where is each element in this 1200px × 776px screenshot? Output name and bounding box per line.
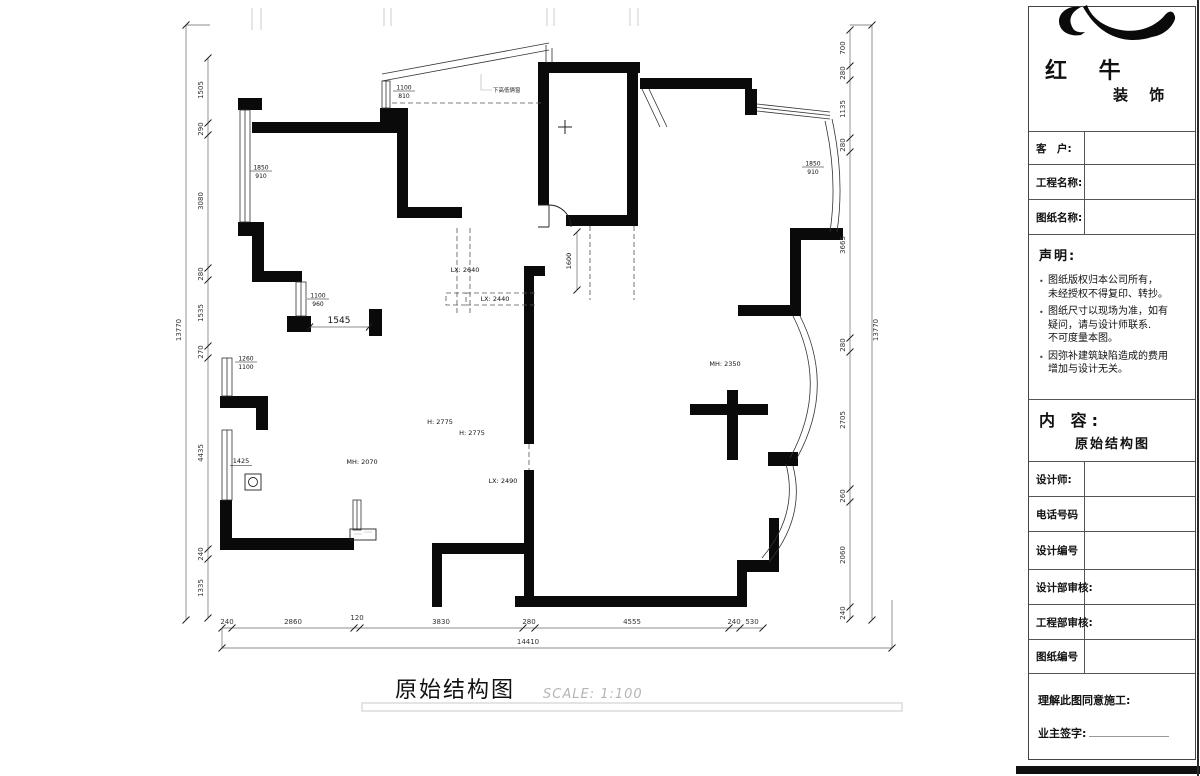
svg-text:120: 120 [350, 614, 363, 622]
svg-text:260: 260 [839, 489, 847, 502]
door-height-label-1: MH: 2070 [346, 458, 377, 466]
note-small: 下高低俩窗 [493, 86, 521, 94]
window-dim-1425: 1425 [233, 457, 250, 465]
svg-text:1850: 1850 [805, 161, 820, 168]
drawing-title: 原始结构图 SCALE: 1:100 [362, 678, 902, 711]
svg-text:280: 280 [197, 267, 205, 280]
window-dim-1100-810: 1100 810 [393, 85, 415, 101]
statement-item: 因弥补建筑缺陷造成的费用 增加与设计无关。 [1039, 350, 1189, 377]
sheet-no-value [1085, 640, 1195, 673]
designer-value [1085, 462, 1195, 496]
field-row-sheet: 图纸名称: [1029, 199, 1195, 234]
drawing-title-text: 原始结构图 [395, 678, 515, 703]
field-row-customer: 客 户: [1029, 131, 1195, 164]
eng-review-label: 工程部审核: [1029, 605, 1085, 639]
svg-text:530: 530 [745, 618, 758, 626]
dim-chain-right: 700 280 1135 280 3665 280 2705 260 2060 … [839, 22, 880, 624]
svg-text:280: 280 [839, 66, 847, 79]
agree-text: 理解此图同意施工: [1038, 692, 1187, 708]
statement-item: 图纸版权归本公司所有， 未经授权不得复印、转抄。 [1039, 274, 1189, 301]
project-name-label: 工程名称: [1029, 165, 1085, 199]
svg-text:1850: 1850 [253, 165, 268, 172]
field-row-design-no: 设计编号 [1029, 531, 1195, 569]
designer-label: 设计师: [1029, 462, 1085, 496]
svg-text:270: 270 [197, 345, 205, 358]
field-row-project: 工程名称: [1029, 164, 1195, 199]
company-logo: 红 牛 装 饰 [1029, 7, 1195, 131]
beam-label-2: LX: 2440 [481, 295, 510, 303]
dim-1545: 1545 [328, 316, 351, 326]
statement-item: 图纸尺寸以现场为准，如有 疑问，请与设计师联系. 不可度量本图。 [1039, 305, 1189, 346]
brand-name: 红 牛 [1045, 53, 1133, 85]
drawing-scale-text: SCALE: 1:100 [543, 687, 643, 702]
svg-text:240: 240 [727, 618, 740, 626]
bull-logo-icon [1029, 5, 1197, 51]
svg-text:1505: 1505 [197, 81, 205, 99]
svg-text:1100: 1100 [310, 293, 325, 300]
statement-heading: 声明: [1039, 245, 1189, 264]
content-block: 内 容: 原始结构图 [1029, 399, 1195, 461]
window-dim-1260-1100: 1260 1100 [235, 356, 257, 372]
sheet-name-value [1085, 200, 1195, 234]
svg-text:290: 290 [197, 122, 205, 135]
field-row-design-review: 设计部审核: [1029, 569, 1195, 604]
svg-text:2705: 2705 [839, 411, 847, 429]
design-no-label: 设计编号 [1029, 532, 1085, 569]
dim-bottom-total: 14410 [517, 638, 539, 646]
dim-right-total: 13770 [872, 319, 880, 341]
leader-line [481, 74, 492, 90]
door-height-label-2: MH: 2350 [709, 360, 740, 368]
brand-subname: 装 饰 [1113, 84, 1172, 105]
sheet-name-label: 图纸名称: [1029, 200, 1085, 234]
statement-block: 声明: 图纸版权归本公司所有， 未经授权不得复印、转抄。 图纸尺寸以现场为准，如… [1029, 234, 1195, 399]
height-label-1: H: 2775 [427, 418, 453, 426]
field-row-eng-review: 工程部审核: [1029, 604, 1195, 639]
height-label-2: H: 2775 [459, 429, 485, 437]
bottom-bar [1016, 766, 1200, 774]
page-edge-line [1197, 0, 1199, 776]
walls [220, 62, 843, 607]
project-name-value [1085, 165, 1195, 199]
title-block: 红 牛 装 饰 客 户: 工程名称: 图纸名称: 声明: 图纸版权归本公司所有，… [1028, 6, 1196, 760]
svg-text:3665: 3665 [839, 236, 847, 254]
svg-text:1335: 1335 [197, 579, 205, 597]
center-mark [558, 120, 572, 134]
svg-text:1100: 1100 [396, 85, 411, 92]
beam-label-3: LX: 2490 [489, 477, 518, 485]
customer-value [1085, 132, 1195, 164]
design-review-value [1085, 570, 1195, 604]
dim-1600: 1600 [565, 253, 573, 270]
field-row-sheet-no: 图纸编号 [1029, 639, 1195, 673]
phone-label: 电话号码 [1029, 497, 1085, 531]
svg-text:240: 240 [839, 606, 847, 619]
signature-line [1089, 726, 1169, 737]
svg-text:280: 280 [839, 338, 847, 351]
plan-details [245, 74, 634, 540]
dim-chain-left: 1505 290 3080 280 1535 270 4435 240 1335… [175, 22, 212, 624]
content-heading: 内 容: [1039, 407, 1103, 431]
svg-text:3080: 3080 [197, 192, 205, 210]
floor-plan-drawing: 1850 910 1100 810 1100 960 1850 910 1260… [0, 0, 1010, 776]
window-dim-1850-910-left: 1850 910 [250, 165, 272, 181]
phone-value [1085, 497, 1195, 531]
signature-block: 理解此图同意施工: 业主签字: [1029, 673, 1195, 761]
svg-text:1535: 1535 [197, 304, 205, 322]
svg-text:3830: 3830 [432, 618, 450, 626]
reference-marks [252, 8, 638, 30]
svg-text:1135: 1135 [839, 100, 847, 118]
column-symbol [245, 474, 261, 490]
svg-text:1260: 1260 [238, 356, 253, 363]
title-underline-bar [362, 703, 902, 711]
svg-text:910: 910 [807, 169, 819, 176]
svg-text:1100: 1100 [238, 364, 253, 371]
content-value: 原始结构图 [1075, 433, 1150, 452]
svg-text:280: 280 [839, 138, 847, 151]
svg-text:4435: 4435 [197, 444, 205, 462]
svg-text:240: 240 [220, 618, 233, 626]
owner-sign-label: 业主签字: [1038, 727, 1086, 740]
svg-text:4555: 4555 [623, 618, 641, 626]
dim-left-total: 13770 [175, 319, 183, 341]
svg-text:700: 700 [839, 41, 847, 54]
sheet-no-label: 图纸编号 [1029, 640, 1085, 673]
dim-chain-bottom: 240 2860 120 3830 280 4555 240 530 14410 [219, 600, 896, 652]
svg-text:280: 280 [522, 618, 535, 626]
svg-text:2860: 2860 [284, 618, 302, 626]
svg-text:240: 240 [197, 547, 205, 560]
svg-text:810: 810 [398, 93, 410, 100]
field-row-phone: 电话号码 [1029, 496, 1195, 531]
field-row-designer: 设计师: [1029, 461, 1195, 496]
svg-text:2060: 2060 [839, 546, 847, 564]
window-dim-1850-910-right: 1850 910 [802, 161, 824, 177]
design-no-value [1085, 532, 1195, 569]
design-review-label: 设计部审核: [1029, 570, 1085, 604]
customer-label: 客 户: [1029, 132, 1085, 164]
window-dim-1100-960: 1100 960 [307, 293, 329, 309]
eng-review-value [1085, 605, 1195, 639]
beam-label-1: LX: 2640 [451, 266, 480, 274]
svg-text:910: 910 [255, 173, 267, 180]
svg-text:960: 960 [312, 301, 324, 308]
